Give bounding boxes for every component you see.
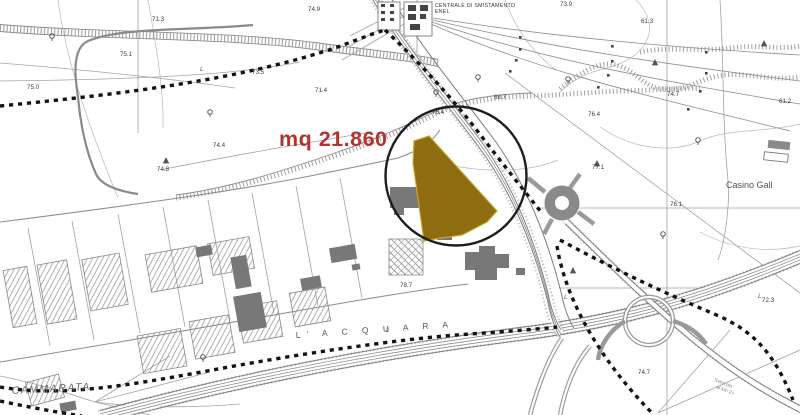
- elevation-label: 78.7: [400, 282, 413, 289]
- elevation-label: 75.1: [120, 51, 133, 58]
- elevation-label: 76.1: [670, 201, 683, 208]
- elevation-label: 73.9: [560, 1, 573, 8]
- map-letter: L: [200, 66, 204, 73]
- elevation-label: 75.0: [27, 84, 40, 91]
- cadastral-map: mq 21.860 CENTRALE DI SMISTAMENTO ENEL C…: [0, 0, 800, 415]
- elevation-label: 74.9: [308, 6, 321, 13]
- roundabout: [528, 174, 594, 234]
- elevation-label: 71.4: [315, 87, 328, 94]
- elevation-label: 68.7: [494, 94, 507, 101]
- elevation-label: 73.5: [252, 69, 265, 76]
- elevation-label: 76.4: [588, 111, 601, 118]
- elevation-label: 61.3: [641, 18, 654, 25]
- area-annotation: mq 21.860: [279, 127, 387, 151]
- centrale-label-line2: ENEL: [435, 9, 450, 15]
- elevation-label: 71.3: [152, 16, 165, 23]
- map-letter: L: [758, 293, 762, 300]
- elevation-label: 74.8: [157, 166, 170, 173]
- elevation-label: 74.4: [213, 142, 226, 149]
- elevation-label: 74.7: [638, 369, 651, 376]
- elevation-label: 72.3: [762, 297, 775, 304]
- map-viewport: mq 21.860 CENTRALE DI SMISTAMENTO ENEL C…: [0, 0, 800, 415]
- cammarata-label: CAMMARATA: [12, 381, 92, 397]
- elevation-label: 77.1: [592, 164, 605, 171]
- elevation-label: 74.7: [667, 91, 680, 98]
- elevation-label: 61.2: [779, 98, 792, 105]
- map-letter: L: [564, 294, 568, 301]
- casino-label: Casino Gall: [726, 180, 773, 190]
- elevation-label: 76.4: [432, 109, 445, 116]
- map-letter: L: [386, 327, 390, 334]
